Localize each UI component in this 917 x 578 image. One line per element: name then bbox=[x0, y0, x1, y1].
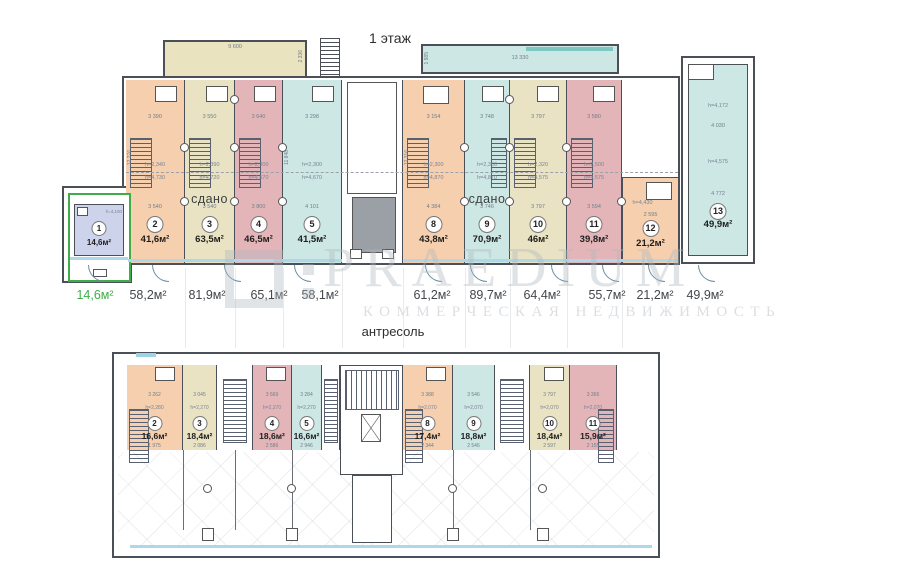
grid-line bbox=[510, 268, 511, 348]
area-label-3: 81,9м² bbox=[188, 288, 225, 302]
grid-line bbox=[465, 268, 466, 348]
column-line bbox=[530, 450, 531, 530]
dim-label: 3 298 bbox=[283, 114, 341, 120]
mezz-stairwell-lower bbox=[352, 475, 392, 543]
stair-shaft bbox=[347, 82, 397, 194]
door-post bbox=[350, 249, 362, 259]
door-post bbox=[382, 249, 394, 259]
area-label-7: 89,7м² bbox=[469, 288, 506, 302]
window-strip bbox=[136, 353, 156, 357]
mezz-unit-2: 3 262 h=2,280 2 16,6м² 1 975 bbox=[127, 365, 183, 450]
unit-area: 41,5м² bbox=[283, 234, 341, 245]
dim-label: 2 344 bbox=[403, 443, 452, 449]
height-label: h=2,340 bbox=[126, 162, 184, 168]
unit-area: 14,6м² bbox=[75, 238, 123, 247]
area-label-10: 21,2м² bbox=[636, 288, 673, 302]
mezz-stairs-block bbox=[217, 365, 253, 450]
height-label: h=2,300 bbox=[465, 162, 509, 168]
dim-label: 3 580 bbox=[567, 114, 621, 120]
dim-label: 9 600 bbox=[165, 44, 305, 50]
dim-label: 3 366 bbox=[570, 392, 616, 398]
shaft-box bbox=[155, 86, 177, 102]
floor1-unit-13: h=4,172 4 030 h=4,575 4 772 13 49,9м² bbox=[688, 64, 748, 256]
door-arc bbox=[294, 265, 311, 282]
unit-area: 39,8м² bbox=[567, 234, 621, 245]
floor1-unit-12: h=4,430 2 595 12 21,2м² bbox=[622, 177, 678, 263]
dim-label: 3 569 bbox=[253, 392, 291, 398]
unit-number: 13 bbox=[710, 203, 727, 220]
unit-area: 18,8м² bbox=[453, 431, 494, 441]
mezz-unit-9: 3 546 h=2,070 9 18,8м² 2 546 bbox=[453, 365, 495, 450]
height-label: h=4,100 bbox=[106, 209, 122, 214]
unit-area: 15,9м² bbox=[570, 431, 616, 441]
area-label-5: 58,1м² bbox=[301, 288, 338, 302]
dim-label: 3 797 bbox=[510, 204, 566, 210]
column bbox=[448, 484, 457, 493]
unit-area: 21,2м² bbox=[623, 238, 678, 249]
height-label: h=2,280 bbox=[127, 405, 182, 411]
floor1-unit-1: h=4,100 1 14,6м² bbox=[74, 204, 124, 256]
height-label: h=2,070 bbox=[453, 405, 494, 411]
stairs-icon bbox=[223, 379, 247, 443]
dim-label: 3 262 bbox=[127, 392, 182, 398]
exterior-stair bbox=[320, 38, 340, 78]
unit-area: 18,4м² bbox=[183, 431, 216, 441]
mezzanine-title: антресоль bbox=[362, 324, 425, 339]
unit-number: 9 bbox=[466, 416, 481, 431]
unit-area: 49,9м² bbox=[689, 219, 747, 230]
unit-number: 3 bbox=[201, 216, 218, 233]
unit-number: 1 bbox=[92, 221, 107, 236]
window-strip bbox=[70, 257, 128, 260]
shaft-box bbox=[544, 367, 564, 381]
column-footing bbox=[202, 528, 214, 541]
door-arc bbox=[470, 265, 487, 282]
vestibule: 9 600 2 336 bbox=[163, 40, 307, 78]
grid-line bbox=[283, 268, 284, 348]
shaft-box bbox=[206, 86, 228, 102]
dim-label: 3 746 bbox=[465, 204, 509, 210]
height-label: h=2,270 bbox=[183, 405, 216, 411]
shaft-box bbox=[537, 86, 559, 102]
shaft-box bbox=[646, 182, 672, 200]
unit-number: 4 bbox=[250, 216, 267, 233]
height-label: h=4,670 bbox=[283, 175, 341, 181]
dim-label: 3 594 bbox=[567, 204, 621, 210]
dim-label: 3 640 bbox=[235, 114, 282, 120]
column bbox=[562, 143, 571, 152]
unit-number: 11 bbox=[586, 416, 601, 431]
window-strip bbox=[404, 259, 678, 262]
mezz-stairs-block bbox=[495, 365, 530, 450]
mezz-stairwell bbox=[340, 365, 403, 475]
dim-label: 3 540 bbox=[185, 204, 234, 210]
height-label: h=4,575 bbox=[510, 175, 566, 181]
dim-label: 3 540 bbox=[126, 204, 184, 210]
floor1-title: 1 этаж bbox=[369, 30, 411, 46]
door-arc bbox=[224, 265, 241, 282]
column bbox=[180, 197, 189, 206]
shaft-box bbox=[266, 367, 286, 381]
dim-label: 11 848 bbox=[284, 150, 290, 165]
dim-label: 2 595 bbox=[623, 212, 678, 218]
dim-label: 2 586 bbox=[253, 443, 291, 449]
column bbox=[278, 197, 287, 206]
height-label: h=4,870 bbox=[403, 175, 464, 181]
column-footing bbox=[537, 528, 549, 541]
dim-label: 2 946 bbox=[292, 443, 321, 449]
door-arc bbox=[648, 265, 665, 282]
dim-label: 1 985 bbox=[424, 52, 430, 65]
unit-number: 10 bbox=[530, 216, 547, 233]
dim-label: 3 045 bbox=[183, 392, 216, 398]
stairs-icon bbox=[345, 370, 399, 410]
stairs-icon bbox=[324, 379, 338, 443]
height-label: h=2,270 bbox=[253, 405, 291, 411]
unit-area: 16,6м² bbox=[292, 431, 321, 441]
height-label: h=4,720 bbox=[185, 175, 234, 181]
column bbox=[505, 95, 514, 104]
height-label: h=2,320 bbox=[510, 162, 566, 168]
unit-number: 11 bbox=[586, 216, 603, 233]
dim-label: 4 384 bbox=[403, 204, 464, 210]
mezz-unit-10: 3 797 h=2,070 10 18,4м² 2 597 bbox=[530, 365, 570, 450]
unit-number: 2 bbox=[147, 216, 164, 233]
elevator-block bbox=[352, 197, 396, 253]
window-strip bbox=[128, 259, 342, 262]
column-footing bbox=[447, 528, 459, 541]
dim-label: 2 155 bbox=[570, 443, 616, 449]
column bbox=[230, 95, 239, 104]
unit-number: 2 bbox=[147, 416, 162, 431]
area-label-8: 64,4м² bbox=[523, 288, 560, 302]
column bbox=[505, 197, 514, 206]
dim-label: 3 154 bbox=[403, 114, 464, 120]
bathroom-box bbox=[688, 64, 714, 80]
unit-area: 16,6м² bbox=[127, 431, 182, 441]
height-label: h=2,500 bbox=[567, 162, 621, 168]
height-label: h=2,300 bbox=[283, 162, 341, 168]
dim-label: 3 546 bbox=[453, 392, 494, 398]
height-label: h=2,300 bbox=[403, 162, 464, 168]
door-arc bbox=[152, 265, 169, 282]
dim-label: 1 975 bbox=[127, 443, 182, 449]
shaft-box bbox=[155, 367, 175, 381]
door-arc bbox=[551, 265, 568, 282]
bathroom-box bbox=[77, 207, 88, 216]
dim-label: 2 546 bbox=[453, 443, 494, 449]
shaft-box bbox=[312, 86, 334, 102]
door-arc bbox=[602, 265, 619, 282]
unit-number: 8 bbox=[425, 216, 442, 233]
area-label-6: 61,2м² bbox=[413, 288, 450, 302]
dim-label: 4 030 bbox=[689, 123, 747, 129]
unit-area: 46м² bbox=[510, 234, 566, 245]
dim-label: 2 086 bbox=[183, 443, 216, 449]
section-dash-line bbox=[126, 172, 678, 173]
stairs-icon bbox=[500, 379, 524, 443]
unit-number: 5 bbox=[299, 416, 314, 431]
column-line bbox=[183, 450, 184, 530]
shaft-box bbox=[426, 367, 446, 381]
corridor-wall-strip bbox=[526, 47, 613, 51]
height-label: h=2,270 bbox=[292, 405, 321, 411]
height-label: h=4,575 bbox=[567, 175, 621, 181]
dim-label: 3 284 bbox=[292, 392, 321, 398]
unit-area: 17,4м² bbox=[403, 431, 452, 441]
grid-line bbox=[622, 268, 623, 348]
top-corridor: 13 330 1 985 bbox=[421, 44, 619, 74]
column bbox=[505, 143, 514, 152]
dim-label: 3 748 bbox=[465, 114, 509, 120]
unit-number: 12 bbox=[642, 220, 659, 237]
dim-label: 4 772 bbox=[689, 191, 747, 197]
unit-number: 10 bbox=[542, 416, 557, 431]
unit-number: 8 bbox=[420, 416, 435, 431]
watermark-subtitle: КОММЕРЧЕСКАЯ НЕДВИЖИМОСТЬ bbox=[363, 304, 781, 321]
height-label: h=2,070 bbox=[570, 405, 616, 411]
height-label: h=4,670 bbox=[235, 175, 282, 181]
area-label-1: 14,6м² bbox=[76, 288, 113, 302]
height-label: h=4,730 bbox=[126, 175, 184, 181]
column bbox=[278, 143, 287, 152]
shaft-box bbox=[593, 86, 615, 102]
height-label: h=2,300 bbox=[235, 162, 282, 168]
shaft-box bbox=[254, 86, 276, 102]
height-label: h=4,575 bbox=[689, 159, 747, 165]
mezz-unit-3: 3 045 h=2,270 3 18,4м² 2 086 bbox=[183, 365, 217, 450]
door-arc bbox=[425, 265, 442, 282]
mezz-stairs-block bbox=[322, 365, 340, 450]
column bbox=[287, 484, 296, 493]
exterior-void bbox=[622, 80, 678, 177]
column bbox=[460, 143, 469, 152]
column bbox=[562, 197, 571, 206]
unit-area: 70,9м² bbox=[465, 234, 509, 245]
unit-area: 18,4м² bbox=[530, 431, 569, 441]
dim-label: 3 388 bbox=[403, 392, 452, 398]
column bbox=[617, 197, 626, 206]
area-label-9: 55,7м² bbox=[588, 288, 625, 302]
grid-line bbox=[342, 268, 343, 348]
column-line bbox=[235, 450, 236, 530]
door-arc bbox=[698, 265, 715, 282]
unit-area: 46,5м² bbox=[235, 234, 282, 245]
unit-number: 9 bbox=[479, 216, 496, 233]
unit-number: 4 bbox=[265, 416, 280, 431]
unit-area: 63,5м² bbox=[185, 234, 234, 245]
mezz-unit-11: 3 366 h=2,070 11 15,9м² 2 155 bbox=[570, 365, 617, 450]
column bbox=[538, 484, 547, 493]
dim-label: 3 550 bbox=[185, 114, 234, 120]
dim-label: 13 330 bbox=[423, 55, 617, 61]
dim-label: 12 316 bbox=[404, 150, 410, 165]
unit-area: 43,8м² bbox=[403, 234, 464, 245]
grid-line bbox=[185, 268, 186, 348]
unit-number: 3 bbox=[192, 416, 207, 431]
height-label: h=4,870 bbox=[465, 175, 509, 181]
elevator-icon bbox=[361, 414, 381, 442]
mezz-unit-8: 3 388 h=2,070 8 17,4м² 2 344 bbox=[403, 365, 453, 450]
floor-plan-canvas: 1 этаж антресоль 9 600 2 336 13 330 1 98… bbox=[0, 0, 917, 578]
unit-number: 5 bbox=[304, 216, 321, 233]
height-label: h=4,172 bbox=[689, 103, 747, 109]
mezz-unit-4: 3 569 h=2,270 4 18,6м² 2 586 bbox=[253, 365, 292, 450]
dim-label: 2 597 bbox=[530, 443, 569, 449]
height-label: h=2,070 bbox=[530, 405, 569, 411]
dim-label: 3 797 bbox=[510, 114, 566, 120]
column bbox=[230, 197, 239, 206]
column bbox=[460, 197, 469, 206]
mezz-unit-5: 3 284 h=2,270 5 16,6м² 2 946 bbox=[292, 365, 322, 450]
area-label-11: 49,9м² bbox=[686, 288, 723, 302]
dim-label: 3 800 bbox=[235, 204, 282, 210]
height-label: h=2,070 bbox=[403, 405, 452, 411]
area-label-2: 58,2м² bbox=[129, 288, 166, 302]
unit-area: 41,6м² bbox=[126, 234, 184, 245]
shaft-box bbox=[482, 86, 504, 102]
area-label-4: 65,1м² bbox=[250, 288, 287, 302]
dim-label: 3 390 bbox=[126, 114, 184, 120]
column bbox=[203, 484, 212, 493]
unit-area: 18,6м² bbox=[253, 431, 291, 441]
dim-label: 4 101 bbox=[283, 204, 341, 210]
shaft-box bbox=[423, 86, 449, 104]
window-strip bbox=[130, 545, 652, 548]
dim-label: 12 276 bbox=[127, 150, 133, 165]
column bbox=[180, 143, 189, 152]
dim-label: 2 336 bbox=[298, 50, 304, 63]
dim-label: 3 797 bbox=[530, 392, 569, 398]
column bbox=[230, 143, 239, 152]
height-label: h=2,390 bbox=[185, 162, 234, 168]
column-footing bbox=[286, 528, 298, 541]
